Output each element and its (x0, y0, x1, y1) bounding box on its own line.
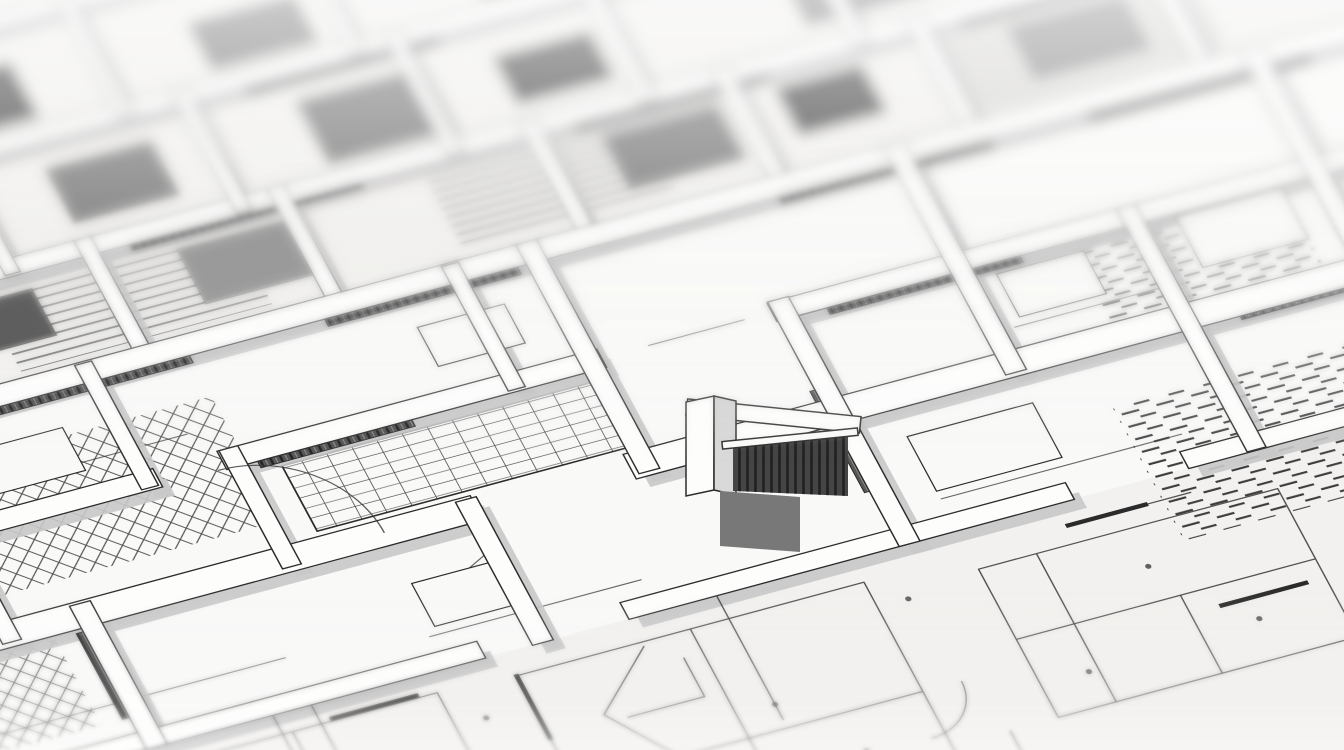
window-mullion-strip (1234, 261, 1344, 319)
floor-plate (0, 0, 1344, 750)
wall-shadow (246, 465, 301, 568)
sketch-line (575, 691, 922, 750)
window-strips (0, 0, 1344, 750)
wall-segment (65, 1, 125, 112)
sketch-dot (1255, 615, 1263, 621)
wall-segment (723, 74, 783, 185)
wall-segment (470, 508, 538, 634)
depth-blur-mid (0, 0, 1344, 750)
window-mullion-strip (570, 66, 770, 130)
wall-outline (723, 74, 783, 185)
floor-line (429, 580, 641, 637)
window-mullion-strip (253, 412, 415, 468)
sketch-dot (771, 701, 779, 707)
depth-blur-top (0, 0, 1344, 750)
wall-outline (0, 481, 146, 582)
paper-background (0, 0, 1344, 750)
wall-outline (181, 94, 241, 205)
wall-outline (0, 157, 9, 268)
wall-outline (531, 250, 645, 462)
furniture-block (778, 0, 933, 26)
furniture-block (775, 65, 887, 135)
wall-shadow (544, 259, 658, 471)
wall-shadow (1268, 64, 1344, 276)
wall-outline (1254, 55, 1344, 267)
wall-shadow (1161, 0, 1221, 79)
furniture-outline (907, 403, 1062, 491)
furniture-block (45, 140, 181, 223)
wall-outline (1147, 0, 1207, 70)
furniture-block (493, 31, 615, 104)
wall-segment (0, 512, 462, 684)
sketch-line (716, 595, 783, 720)
wall-outline (635, 494, 1060, 608)
wall-outline (0, 0, 1320, 158)
wall-shadow (78, 10, 138, 121)
furniture-block (187, 0, 318, 70)
wall-shadow (99, 254, 159, 365)
sketch-dot (1085, 669, 1093, 675)
door-swing-arc (298, 746, 381, 750)
wall-segment (0, 0, 1344, 455)
wall-outline (232, 456, 287, 559)
wall-shadow (736, 82, 796, 193)
wall-shadow (98, 621, 166, 747)
furniture-outline (1176, 188, 1309, 267)
wall-outline (782, 308, 905, 536)
wall-segment (0, 157, 9, 268)
wall-shadow (100, 379, 160, 490)
sketch-line (1010, 730, 1044, 750)
window-mullion-strip (0, 347, 193, 435)
wall-outline (279, 193, 339, 304)
floor-plates (0, 0, 1344, 750)
floor-line (1014, 286, 1168, 328)
wall-shadow (0, 1, 1344, 464)
wall-outline (0, 0, 1344, 455)
wall-segment (530, 126, 590, 237)
wall-outline (0, 0, 1344, 377)
sketch-line (1036, 554, 1116, 702)
wall-segment (453, 271, 513, 382)
cut-wall-band (695, 408, 852, 424)
sketch-line (606, 658, 704, 718)
wall-segment (783, 122, 1344, 309)
walls (0, 0, 1344, 750)
wall-segment (635, 494, 1060, 608)
wall-segment (0, 652, 471, 750)
wall-segment (0, 0, 1344, 268)
sketch-line (979, 489, 1344, 718)
sketch-thick-mark (1219, 582, 1308, 606)
wall-outline (0, 652, 471, 750)
furniture-outline (0, 428, 86, 502)
cut-wall-band-outline (695, 408, 852, 424)
dash-texture-area (1113, 335, 1344, 540)
wall-shadow (0, 490, 160, 591)
window-mullion-strip (823, 248, 1024, 314)
window-mullion-strip (126, 176, 364, 251)
depth-blur-bottom (0, 0, 1344, 750)
window-mullion-strip (774, 131, 995, 204)
sketch-thick-mark (1066, 504, 1148, 526)
wall-shadow (929, 30, 989, 141)
cut-wall-face (720, 491, 800, 552)
wall-shadow (649, 503, 1074, 617)
sketch-dot (904, 596, 912, 602)
wall-segment (0, 0, 1320, 158)
wall-shadow (796, 316, 919, 544)
sketch-line (1016, 559, 1315, 640)
wall-segment (232, 456, 287, 559)
wall-outline (783, 122, 1344, 309)
wall-shadow (467, 280, 527, 391)
cut-wall-face (714, 396, 736, 495)
wall-outline (0, 422, 8, 634)
wall-shadow (911, 160, 1025, 372)
sketch-line (311, 704, 403, 750)
wall-segment (87, 370, 147, 481)
furniture-outline (996, 251, 1106, 317)
wall-shadow (484, 517, 552, 643)
sketch-line (690, 629, 812, 750)
door-swing-arc (908, 681, 984, 738)
wall-shadow (0, 166, 23, 277)
cut-wall-band-outline (726, 432, 854, 445)
stripe-texture-area (0, 226, 272, 372)
wall-shadow (247, 370, 604, 466)
floor-plate (0, 0, 1344, 502)
furniture-outline (412, 559, 527, 627)
wall-outline (453, 271, 513, 382)
wall-outline (897, 152, 1011, 364)
wall-segment (645, 249, 1344, 462)
wall-shadow (0, 0, 1334, 167)
sketch-thick-mark (330, 695, 419, 719)
window-mullion-strip (320, 259, 521, 327)
pencil-sketch-plan (0, 223, 1344, 750)
wall-segment (0, 481, 146, 582)
sketch-dot (1144, 563, 1152, 569)
wall-outline (0, 0, 1344, 268)
wall-outline (470, 508, 538, 634)
wall-segment (0, 0, 1344, 377)
scene-root (0, 0, 1344, 750)
wall-outline (87, 370, 147, 481)
door-swing-arc (218, 439, 384, 564)
wall-segment (86, 245, 146, 356)
wall-shadow (659, 258, 1344, 471)
wall-shadow (0, 521, 475, 693)
wall-segment (0, 422, 8, 634)
wall-shadow (0, 0, 1344, 386)
wall-shadow (543, 134, 603, 245)
sketch-line (1066, 492, 1191, 526)
floor-line (907, 408, 1013, 437)
furniture-block (1006, 0, 1151, 80)
architectural-render (0, 0, 1344, 750)
wall-segment (587, 0, 647, 96)
stripe-texture-area (423, 117, 673, 244)
floor-line (33, 434, 187, 476)
sketch-line (517, 582, 986, 750)
cut-wall-band (726, 432, 854, 445)
wall-segment (1147, 0, 1207, 70)
wall-outline (916, 22, 976, 133)
wall-shadows (0, 0, 1344, 750)
furniture-block (0, 288, 57, 358)
grid-texture-area (282, 380, 636, 531)
wall-shadow (310, 0, 370, 58)
wall-shadow (195, 103, 255, 214)
wall-segment (279, 193, 339, 304)
wall-outline (1130, 214, 1253, 442)
xhatch-texture-area (0, 396, 279, 601)
furniture-block (0, 62, 39, 148)
furniture-block (177, 221, 313, 304)
sketch-line (557, 646, 726, 750)
haze-overlay-top (0, 0, 1344, 230)
wall-shadow (1143, 223, 1266, 451)
wall-outline (0, 512, 462, 684)
furniture-block (601, 104, 746, 190)
wall-segment (181, 94, 241, 205)
furniture-block (296, 67, 455, 163)
wall-shadow (0, 661, 484, 750)
window-mullion-strip (1082, 46, 1312, 121)
window-mullion-strip (810, 387, 880, 493)
cut-wall-face (733, 429, 848, 496)
wall-outline (65, 1, 125, 112)
window-mullion-strip (76, 630, 138, 720)
window-mullion-strip (242, 32, 441, 95)
wall-outline (84, 612, 152, 738)
furniture-focus (0, 106, 1344, 720)
floor-line (446, 555, 504, 601)
furniture-back (0, 0, 1152, 444)
floor-plate (0, 299, 1344, 750)
wall-outline (296, 0, 356, 49)
floor-detail-lines (0, 184, 1240, 750)
wall-shadow (0, 431, 22, 643)
furniture-outline (417, 304, 525, 366)
sketch-thick-mark (516, 674, 551, 740)
wall-outline (799, 0, 859, 39)
wall-shadow (407, 46, 467, 157)
sketch-line (293, 732, 371, 750)
dash-texture-area (1067, 184, 1330, 335)
stair-slats (733, 429, 848, 496)
wall-shadow (797, 131, 1344, 318)
wall-outline (587, 0, 647, 96)
wall-segment (531, 250, 645, 462)
xhatch-texture-area (0, 639, 101, 750)
wall-outline (86, 245, 146, 356)
sketch-line (0, 693, 515, 750)
window-mullion-strip (956, 0, 1214, 27)
wall-shadow (0, 0, 1344, 276)
wall-segment (1195, 333, 1344, 458)
sketch-line (272, 715, 373, 750)
center-stairwell-overlay (686, 396, 854, 552)
sketch-dot (482, 715, 490, 721)
wall-shadow (813, 0, 873, 48)
wall-segment (233, 361, 590, 457)
wall-shadow (292, 202, 352, 313)
wall-segment (1130, 214, 1253, 442)
wall-segment (782, 308, 905, 536)
wall-outline (233, 361, 590, 457)
floorplan-scene (0, 0, 1344, 750)
plan-plane (0, 0, 1344, 750)
floor-line (648, 320, 745, 346)
wall-segment (84, 612, 152, 738)
wall-segment (897, 152, 1011, 364)
wall-shadow (600, 0, 660, 105)
wall-outline (1195, 333, 1344, 458)
hatch-areas (0, 0, 1344, 750)
wall-shadow (1208, 341, 1344, 466)
floor-line (941, 434, 1182, 499)
wall-segment (296, 0, 356, 49)
cut-wall-face (686, 396, 714, 496)
wall-segment (916, 22, 976, 133)
wall-segment (1254, 55, 1344, 267)
sketch-line (1180, 595, 1222, 673)
wall-outline (645, 249, 1344, 462)
wall-outline (530, 126, 590, 237)
floor-line (0, 658, 286, 746)
wall-segment (394, 37, 454, 148)
haze-overlay-bottom (0, 700, 1344, 750)
stripe-texture-area (915, 0, 1227, 119)
wall-segment (799, 0, 859, 39)
wall-outline (394, 37, 454, 148)
